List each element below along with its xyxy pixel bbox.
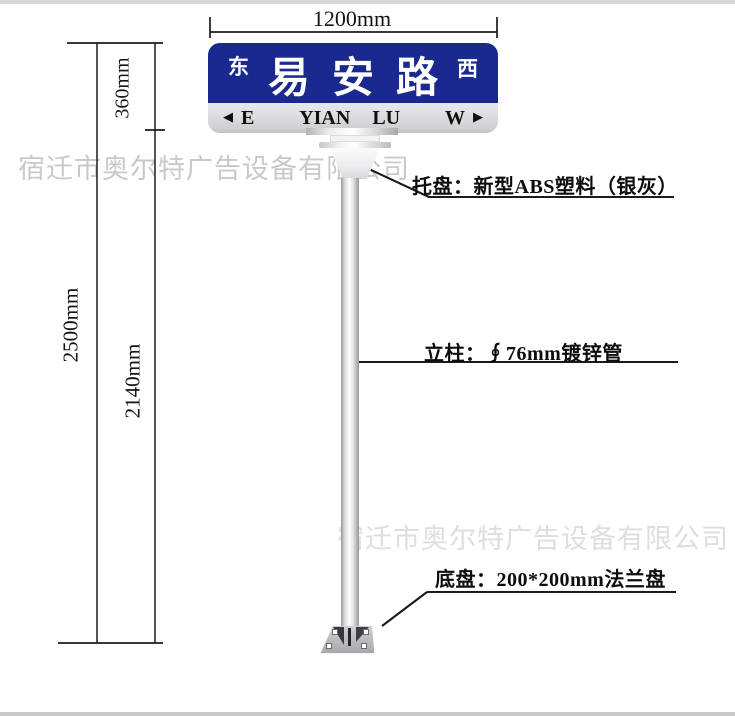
strip-left-group: ◀ E <box>223 107 254 130</box>
base-callout-label: 底盘：200*200mm法兰盘 <box>435 563 666 592</box>
pole-column <box>341 178 359 648</box>
pole-bottom-slot <box>348 628 351 646</box>
base-callout-pointer <box>382 592 427 626</box>
direction-east-cn: 东 <box>228 51 249 81</box>
arrow-right-icon: ▶ <box>473 109 483 125</box>
bolt-hole-top-left <box>333 630 337 634</box>
direction-west-en: W <box>445 107 465 130</box>
direction-west-cn: 西 <box>457 53 478 83</box>
dim-total-height-label: 2500mm <box>59 288 84 363</box>
direction-east-en: E <box>241 107 254 130</box>
tray-side-tabs <box>319 142 391 148</box>
dim-pole-height-label: 2140mm <box>121 344 146 419</box>
road-name-en-word1: YIAN <box>299 107 350 130</box>
road-name-en: YIAN LU <box>299 107 400 130</box>
street-sign-plate: 东 易安路 西 ◀ E YIAN LU W ▶ <box>208 43 498 133</box>
road-name-en-word2: LU <box>372 107 400 130</box>
sign-panel-top: 东 易安路 西 <box>208 43 498 103</box>
tray-cap-step <box>330 135 380 142</box>
bolt-hole-bottom-right <box>362 644 366 648</box>
strip-right-group: W ▶ <box>445 107 483 130</box>
sign-bracket-bar <box>306 128 398 135</box>
bolt-hole-bottom-left <box>327 644 331 648</box>
product-diagram-canvas: 宿迁市奥尔特广告设备有限公司 宿迁市奥尔特广告设备有限公司 1200mm 360… <box>0 0 735 716</box>
tray-callout-label: 托盘：新型ABS塑料（银灰） <box>412 170 678 199</box>
pole-callout-label: 立柱：∮76mm镀锌管 <box>424 337 623 366</box>
arrow-left-icon: ◀ <box>223 109 233 125</box>
dim-width-label: 1200mm <box>313 6 391 32</box>
road-name-cn: 易安路 <box>268 44 460 105</box>
dim-sign-height-label: 360mm <box>112 57 135 118</box>
bolt-hole-top-right <box>364 630 368 634</box>
